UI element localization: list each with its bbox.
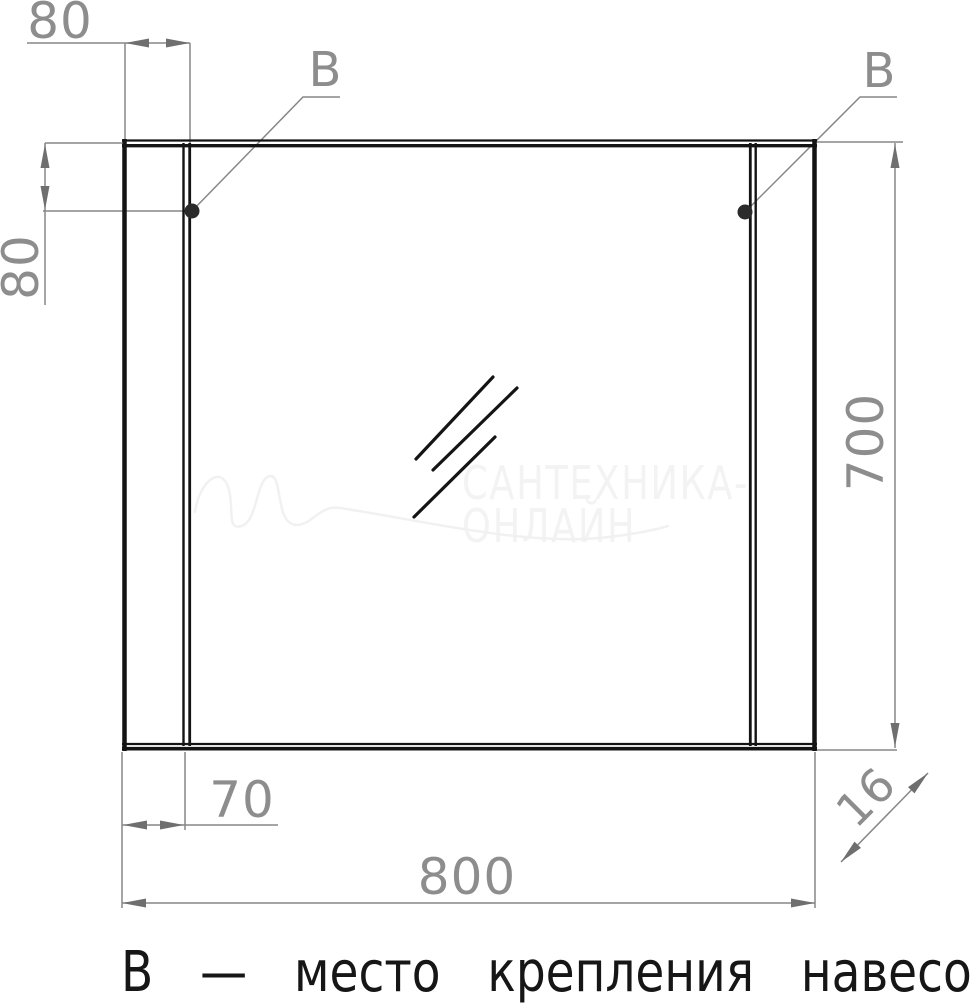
- leader-mount-left: [192, 97, 340, 211]
- arrow-70-right: [160, 821, 184, 830]
- dimension-arrowheads: [41, 39, 932, 908]
- leader-mount-right: [745, 97, 897, 212]
- glass-reflection-marks: [414, 377, 517, 517]
- callout-mount-left: В: [309, 46, 342, 94]
- arrow-height-down: [891, 723, 900, 747]
- dimension-lines: [27, 43, 928, 908]
- reflection-stroke-1: [416, 377, 493, 459]
- dim-label-top-offset-80: 80: [27, 0, 93, 46]
- callout-mount-right: В: [863, 47, 896, 95]
- arrow-left-down: [41, 186, 50, 210]
- mirror-outline: [122, 139, 817, 751]
- drawing-canvas: САНТЕХНИКА- ОНЛАЙН: [0, 0, 976, 1003]
- arrow-height-up: [891, 144, 900, 168]
- mount-point-left: [185, 204, 200, 219]
- arrow-left-up: [41, 144, 50, 168]
- arrow-800-left: [122, 899, 146, 908]
- arrow-800-right: [791, 899, 815, 908]
- dim-label-height-700: 700: [841, 393, 891, 491]
- arrow-top-left: [125, 39, 149, 48]
- arrow-70-left: [123, 821, 147, 830]
- arrow-top-right: [166, 39, 190, 48]
- dim-label-width-800: 800: [418, 852, 516, 902]
- dim-label-panel-width-70: 70: [209, 775, 275, 825]
- watermark-squiggle: [195, 476, 668, 539]
- dim-label-side-offset-80: 80: [0, 234, 46, 300]
- mount-point-right: [738, 205, 753, 220]
- caption-legend: В — место крепления навесов: [121, 945, 976, 1001]
